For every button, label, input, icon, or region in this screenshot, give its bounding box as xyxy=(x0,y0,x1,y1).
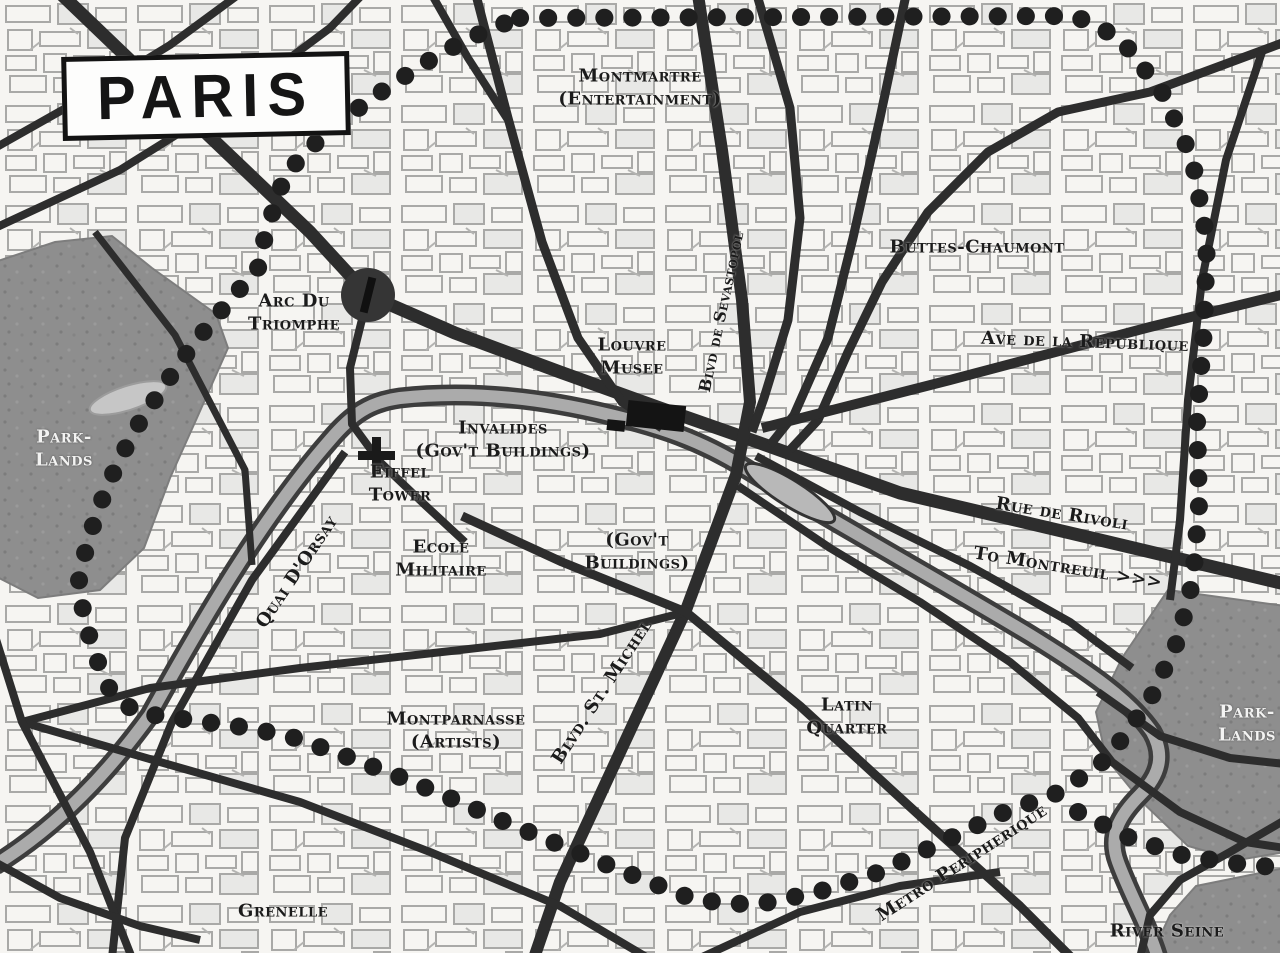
label-govt-buildings-line2: Buildings) xyxy=(584,552,689,575)
label-buttes-chaumont: Buttes-Chaumont xyxy=(889,235,1064,258)
label-parklands-east: Park- Lands xyxy=(1218,701,1276,748)
label-montmartre-line2: (Entertainment) xyxy=(558,88,721,111)
label-parklands-west-line1: Park- xyxy=(35,426,93,449)
label-montparnasse: Montparnasse (Artists) xyxy=(387,708,526,755)
label-invalides: Invalides (Gov't Buildings) xyxy=(415,417,590,464)
arc-de-triomphe-icon xyxy=(341,268,395,322)
label-grenelle-text: Grenelle xyxy=(238,899,328,922)
label-govt-buildings: (Gov't Buildings) xyxy=(584,529,689,576)
label-montmartre-line1: Montmartre xyxy=(558,65,721,88)
label-montparnasse-line2: (Artists) xyxy=(387,731,526,754)
label-govt-buildings-line1: (Gov't xyxy=(584,529,689,552)
label-louvre-line1: Louvre xyxy=(597,334,666,357)
label-arc-triomphe-line2: Triomphe xyxy=(248,313,340,336)
label-river-seine: River Seine xyxy=(1110,919,1224,942)
label-eiffel-line1: Eiffel xyxy=(369,461,432,484)
map-title-box: PARIS xyxy=(61,51,351,141)
label-ecole-militaire: Ecole Militaire xyxy=(395,536,487,583)
label-buttes-chaumont-text: Buttes-Chaumont xyxy=(889,235,1064,258)
label-montparnasse-line1: Montparnasse xyxy=(387,708,526,731)
label-grenelle: Grenelle xyxy=(238,899,328,922)
label-latin-quarter-line2: Quarter xyxy=(806,717,887,740)
label-arc-triomphe-line1: Arc Du xyxy=(248,290,340,313)
label-eiffel-line2: Tower xyxy=(369,484,432,507)
label-eiffel: Eiffel Tower xyxy=(369,461,432,508)
label-parklands-west: Park- Lands xyxy=(35,426,93,473)
label-montmartre: Montmartre (Entertainment) xyxy=(558,65,721,112)
city-block-texture xyxy=(0,0,1280,953)
map-title: PARIS xyxy=(96,59,315,134)
label-parklands-east-line2: Lands xyxy=(1218,724,1276,747)
label-ecole-militaire-line1: Ecole xyxy=(395,536,487,559)
label-parklands-west-line2: Lands xyxy=(35,449,93,472)
label-latin-quarter-line1: Latin xyxy=(806,694,887,717)
paris-map: PARIS Montmartre (Entertainment) Buttes-… xyxy=(0,0,1280,953)
label-ecole-militaire-line2: Militaire xyxy=(395,559,487,582)
label-invalides-line2: (Gov't Buildings) xyxy=(415,440,590,463)
label-louvre: Louvre Musee xyxy=(597,334,666,381)
label-river-seine-text: River Seine xyxy=(1110,919,1224,942)
label-louvre-line2: Musee xyxy=(597,357,666,380)
map-canvas xyxy=(0,0,1280,953)
label-arc-triomphe: Arc Du Triomphe xyxy=(248,290,340,337)
label-latin-quarter: Latin Quarter xyxy=(806,694,887,741)
label-invalides-line1: Invalides xyxy=(415,417,590,440)
label-parklands-east-line1: Park- xyxy=(1218,701,1276,724)
